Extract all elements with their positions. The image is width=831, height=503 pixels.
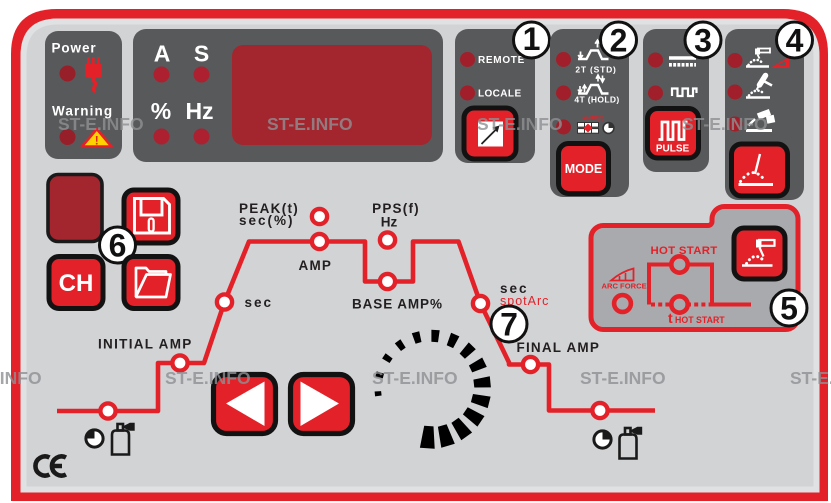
svg-text:ST-E.INFO: ST-E.INFO <box>58 114 144 134</box>
svg-text:sec: sec <box>245 295 274 310</box>
svg-text:INITIAL AMP: INITIAL AMP <box>98 337 193 352</box>
svg-text:t: t <box>668 310 673 326</box>
svg-text:Hz: Hz <box>185 98 213 124</box>
svg-text:ARC FORCE: ARC FORCE <box>602 282 647 291</box>
svg-text:2T (STD): 2T (STD) <box>575 65 616 75</box>
svg-text:S: S <box>194 41 209 67</box>
svg-text:1: 1 <box>523 21 541 57</box>
svg-text:ST-E.INFO: ST-E.INFO <box>372 368 458 388</box>
svg-text:6: 6 <box>109 228 127 264</box>
svg-text:CH: CH <box>59 270 94 297</box>
svg-text:ST-E.INFO: ST-E.INFO <box>0 368 42 388</box>
svg-text:ST-E.INFO: ST-E.INFO <box>790 368 831 388</box>
svg-text:AMP: AMP <box>299 258 333 273</box>
svg-text:%: % <box>151 98 171 124</box>
svg-text:4T (HOLD): 4T (HOLD) <box>574 95 619 105</box>
svg-text:Power: Power <box>52 41 97 56</box>
svg-text:Hz: Hz <box>381 215 398 230</box>
svg-text:2: 2 <box>610 23 628 59</box>
svg-text:ST-E.INFO: ST-E.INFO <box>165 368 251 388</box>
svg-text:PULSE: PULSE <box>656 144 690 155</box>
svg-text:REMOTE: REMOTE <box>478 55 525 66</box>
svg-text:7: 7 <box>500 307 518 343</box>
svg-text:MODE: MODE <box>565 162 603 176</box>
svg-text:4: 4 <box>786 23 804 59</box>
svg-text:A: A <box>154 41 171 67</box>
svg-text:ST-E.INFO: ST-E.INFO <box>580 368 666 388</box>
svg-text:LOCALE: LOCALE <box>478 89 522 100</box>
svg-text:spot/t(e): spot/t(e) <box>582 116 604 122</box>
svg-text:sec(%): sec(%) <box>239 213 295 228</box>
svg-text:ST-E.INFO: ST-E.INFO <box>477 114 563 134</box>
svg-text:5: 5 <box>780 291 798 327</box>
svg-text:BASE AMP%: BASE AMP% <box>352 297 443 312</box>
svg-text:HOT START: HOT START <box>675 315 725 325</box>
svg-text:3: 3 <box>694 23 712 59</box>
svg-text:FINAL AMP: FINAL AMP <box>517 340 601 355</box>
svg-text:ST-E.INFO: ST-E.INFO <box>267 114 353 134</box>
svg-text:ST-E.INFO: ST-E.INFO <box>682 114 768 134</box>
svg-text:!: ! <box>95 134 99 148</box>
